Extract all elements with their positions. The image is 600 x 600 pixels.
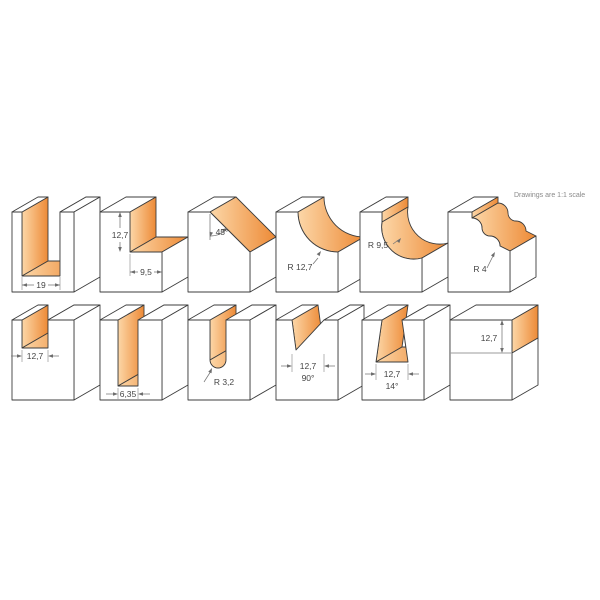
dim-label: R 4: [473, 264, 487, 274]
block-faces: [12, 197, 100, 292]
block-faces: [12, 305, 100, 400]
front-face: [450, 320, 512, 400]
dim-label-angle: 90°: [302, 373, 315, 383]
block-faces: [276, 305, 364, 400]
scale-note: Drawings are 1:1 scale: [514, 192, 585, 199]
block-faces: [448, 197, 536, 292]
dim-label: 45°: [216, 227, 229, 237]
narrow-slot-drawing: 6,35: [96, 298, 196, 413]
block-faces: [100, 305, 188, 400]
straight-groove-drawing: 19: [8, 190, 108, 305]
dim-label: 19: [36, 280, 46, 290]
round-nose-drawing: R 3,2: [184, 298, 284, 413]
dim-label: 12,7: [27, 351, 44, 361]
edge-depth-drawing: 12,7: [446, 298, 546, 413]
block-faces: [450, 305, 538, 400]
dim-label: 12,7: [112, 230, 129, 240]
block-faces: [100, 197, 188, 292]
block-faces: [362, 305, 450, 400]
dovetail-drawing: 12,7 14°: [358, 298, 458, 413]
block-faces: [188, 197, 276, 292]
dim-label: 9,5: [140, 267, 152, 277]
dim-label: 6,35: [120, 389, 137, 399]
rabbet-drawing: 12,7 9,5: [96, 190, 196, 305]
dim-label: 12,7: [481, 333, 498, 343]
dim-label: 12,7: [300, 361, 317, 371]
dim-label: R 9,5: [368, 240, 389, 250]
dim-label: R 3,2: [214, 377, 235, 387]
block-faces: [276, 197, 364, 292]
cove-fillet-drawing: R 9,5: [356, 190, 456, 305]
v-groove-drawing: 12,7 90°: [272, 298, 372, 413]
dado-groove-drawing: 12,7: [8, 298, 108, 413]
chamfer-drawing: 45°: [184, 190, 284, 305]
ogee-drawing: R 4: [444, 190, 544, 305]
dim-label-angle: 14°: [386, 381, 399, 391]
router-bit-profile-sheet: 19 12,7 9,5: [0, 0, 600, 600]
dim-label: 12,7: [384, 369, 401, 379]
dim-label: R 12,7: [287, 262, 312, 272]
